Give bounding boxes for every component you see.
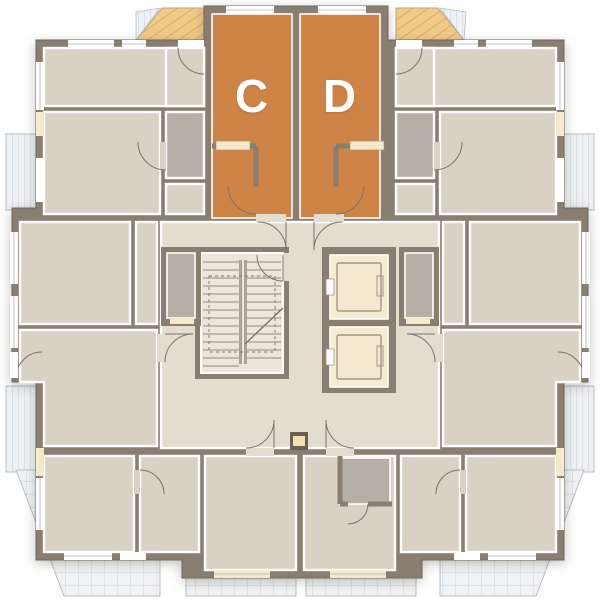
room (205, 456, 296, 570)
balcony-left-lower (6, 386, 36, 472)
floor-plan-stage: C D (0, 0, 600, 600)
door-bridge (326, 448, 354, 456)
sill (36, 112, 44, 136)
stairwell (195, 247, 289, 379)
niche-sill (293, 436, 305, 446)
door-bridge (283, 253, 289, 281)
sill (556, 112, 564, 136)
wet-room-floor (340, 458, 390, 504)
elevator-door-lower (326, 349, 334, 365)
sill (216, 141, 250, 150)
unit-D-label[interactable]: D (323, 69, 357, 123)
elevator-car-upper[interactable] (337, 263, 381, 311)
room (166, 48, 204, 106)
sill (556, 448, 564, 476)
room (396, 48, 434, 106)
wet-room-floor (167, 253, 195, 318)
elevator-car-lower[interactable] (337, 335, 381, 379)
wet-room-floor (405, 253, 433, 318)
balcony-bottom-center-left (186, 576, 296, 596)
balcony-left-upper (6, 134, 36, 210)
door-bridge (460, 470, 466, 494)
room (401, 456, 460, 552)
room (466, 456, 556, 552)
sill (406, 318, 430, 324)
balcony-right-lower (564, 386, 594, 472)
unit-C-label[interactable]: C (235, 69, 269, 123)
floor-plan-svg (0, 0, 600, 600)
elevator-core (322, 247, 396, 393)
door-bridge (256, 214, 286, 222)
room (20, 222, 130, 324)
wet-room (396, 112, 434, 178)
door-bridge (435, 334, 443, 362)
room (443, 222, 464, 324)
room (136, 222, 157, 324)
door-bridge (134, 470, 140, 494)
door-bridge (157, 334, 165, 362)
door-bridge (434, 142, 440, 170)
door-bridge (160, 142, 166, 170)
balcony-right-upper (564, 134, 594, 210)
balcony-bottom-center-right (306, 576, 416, 596)
door-bridge (314, 214, 344, 222)
room (470, 222, 580, 324)
sill (350, 141, 384, 150)
door-bridge (246, 448, 274, 456)
wet-room (166, 112, 204, 178)
sill (36, 448, 44, 476)
elevator-door-upper (326, 279, 334, 295)
room (396, 184, 434, 214)
room (140, 456, 199, 552)
room (44, 456, 134, 552)
building (10, 6, 590, 578)
room (166, 184, 204, 214)
sill (170, 318, 194, 324)
room (44, 112, 160, 214)
room (440, 112, 556, 214)
